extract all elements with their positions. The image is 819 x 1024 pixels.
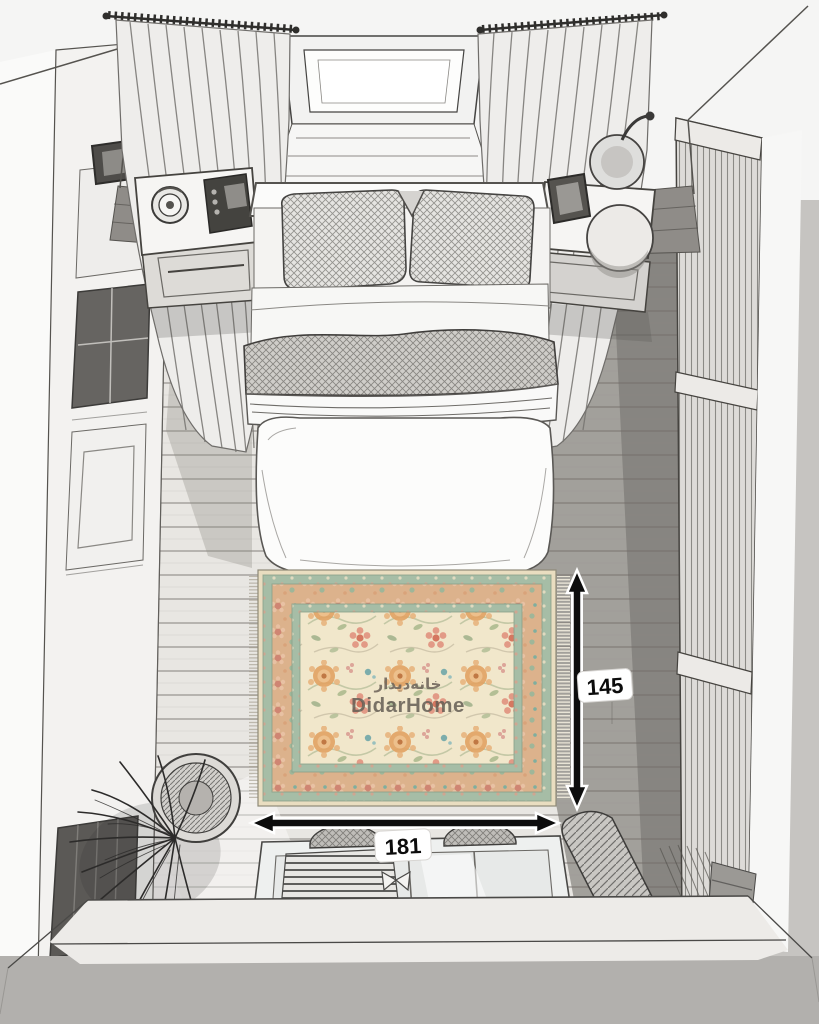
- bottom-baseboard: [0, 896, 819, 1024]
- rug-room-visualization: خانه‌دیدار DidarHome: [0, 0, 819, 1024]
- rug-watermark-en: DidarHome: [351, 694, 465, 717]
- height-dimension-label: 145: [577, 668, 633, 703]
- pillow-left: [282, 190, 406, 290]
- bed: [244, 183, 558, 574]
- decor-frame: [548, 174, 590, 223]
- rug-watermark-fa: خانه‌دیدار: [374, 675, 442, 693]
- nightstand-left: [135, 168, 262, 338]
- svg-text:181: 181: [384, 833, 422, 860]
- alarm-clock: [152, 187, 188, 223]
- area-rug: خانه‌دیدار DidarHome: [249, 570, 570, 806]
- svg-text:145: 145: [586, 673, 624, 701]
- textured-blanket: [244, 330, 558, 396]
- rug-fringe-left: [249, 576, 258, 800]
- radio-device: [204, 174, 252, 233]
- pillow-right: [410, 190, 534, 288]
- rug-fringe-right: [557, 576, 570, 800]
- width-dimension-label: 181: [374, 829, 432, 863]
- bedroom-sketch-canvas: خانه‌دیدار DidarHome: [0, 0, 819, 1024]
- duvet: [256, 417, 553, 574]
